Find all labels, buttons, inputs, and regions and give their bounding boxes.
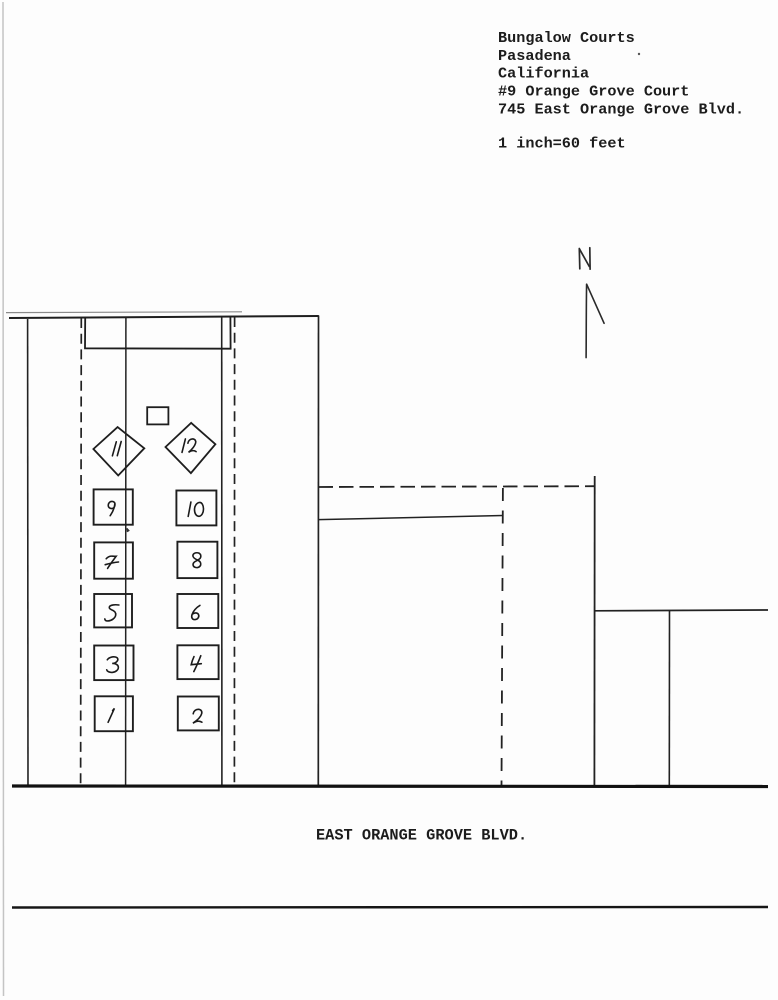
svg-text:Bungalow Courts: Bungalow Courts	[498, 29, 635, 47]
svg-text:Pasadena: Pasadena	[498, 47, 571, 65]
svg-text:#9 Orange Grove Court: #9 Orange Grove Court	[498, 83, 689, 101]
svg-text:California: California	[498, 65, 589, 83]
svg-text:745 East Orange Grove Blvd.: 745 East Orange Grove Blvd.	[498, 100, 744, 118]
svg-text:1 inch=60 feet: 1 inch=60 feet	[498, 135, 626, 153]
svg-text:EAST ORANGE GROVE BLVD.: EAST ORANGE GROVE BLVD.	[316, 827, 527, 845]
